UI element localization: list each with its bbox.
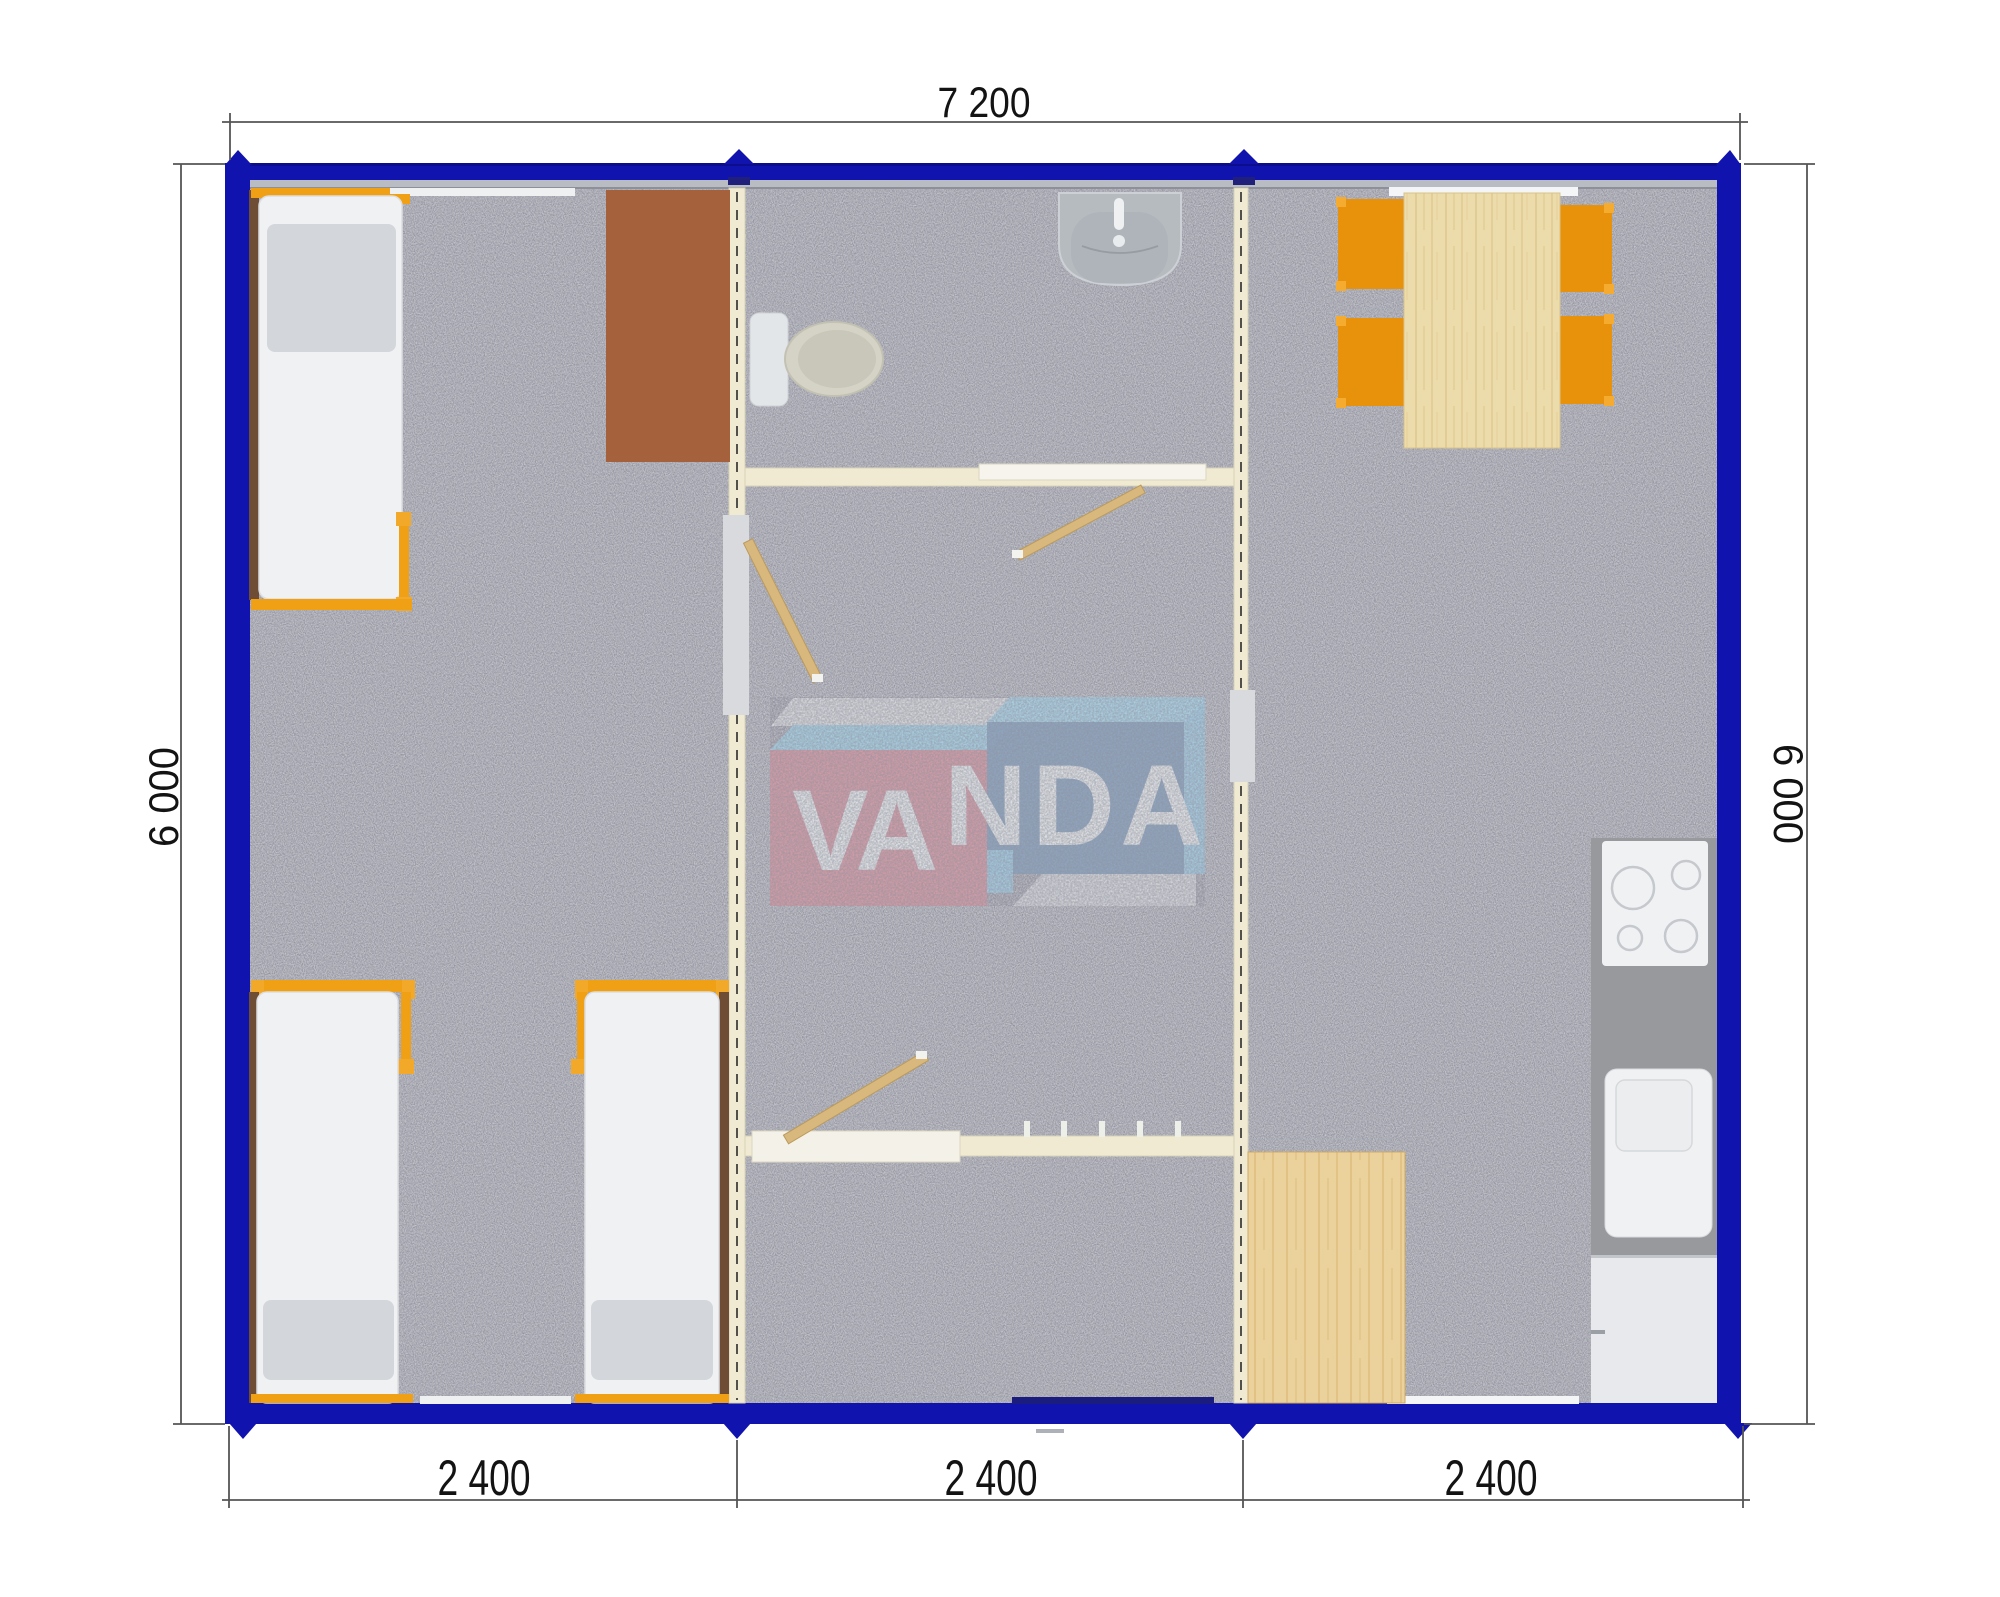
svg-text:6 000: 6 000 — [140, 747, 187, 847]
svg-text:2 400: 2 400 — [1445, 1450, 1538, 1506]
svg-text:6 000: 6 000 — [1765, 744, 1812, 844]
svg-text:7 200: 7 200 — [938, 79, 1031, 127]
svg-text:2 400: 2 400 — [438, 1450, 531, 1506]
svg-text:2 400: 2 400 — [945, 1450, 1038, 1506]
